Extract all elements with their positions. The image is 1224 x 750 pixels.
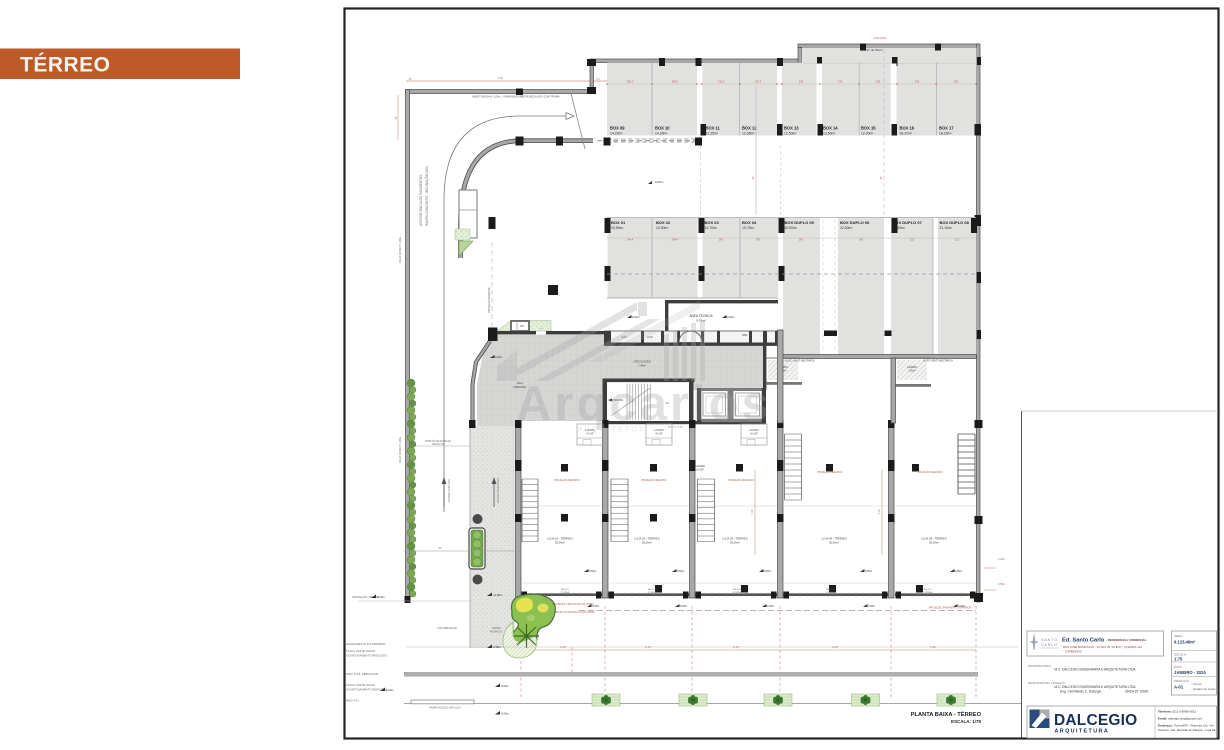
svg-text:Endereço: Torres/RS - Praia da: Endereço: Torres/RS - Praia da Cal - Av. (1158, 724, 1214, 728)
svg-text:Eng. Civil Márcio C. Dalcegio: Eng. Civil Márcio C. Dalcegio (1060, 690, 1102, 694)
svg-text:0,35m: 0,35m (998, 583, 1005, 586)
svg-text:PROJEÇÃO MEZANINO: PROJEÇÃO MEZANINO (817, 471, 843, 474)
svg-text:7,10: 7,10 (878, 509, 881, 514)
svg-text:55,00m²: 55,00m² (829, 541, 839, 545)
svg-text:PLACA LIMITE VAGAS: PLACA LIMITE VAGAS (346, 683, 375, 687)
svg-text:4,00x4,00m: 4,00x4,00m (873, 36, 887, 40)
svg-text:PROPRIETÁRIO:: PROPRIETÁRIO: (1028, 664, 1052, 668)
svg-text:0,38m: 0,38m (493, 645, 501, 649)
svg-text:0,40m: 0,40m (998, 558, 1005, 561)
svg-text:BOX 16: BOX 16 (900, 126, 915, 131)
svg-text:7,44m²: 7,44m² (638, 365, 646, 368)
svg-text:RAMPA CONCRETO - INCLINAÇÃO 20: RAMPA CONCRETO - INCLINAÇÃO 20% (424, 166, 429, 226)
svg-text:M.C. DALCEGIO ENGENHARIA E ARQ: M.C. DALCEGIO ENGENHARIA E ARQUITETURA L… (1054, 685, 1136, 689)
svg-text:MEIO FIO: MEIO FIO (346, 699, 359, 703)
svg-text:PROJEÇÃO MEZANINO: PROJEÇÃO MEZANINO (728, 479, 754, 482)
svg-text:239: 239 (876, 80, 881, 84)
svg-text:12,25m²: 12,25m² (706, 132, 719, 136)
svg-text:BOX 04: BOX 04 (742, 220, 757, 225)
svg-text:0,50m: 0,50m (677, 569, 684, 573)
svg-text:LAVABO: LAVABO (695, 465, 705, 468)
svg-text:0,35m: 0,35m (958, 604, 965, 608)
svg-text:9.123,49m²: 9.123,49m² (1174, 640, 1196, 645)
svg-text:ACANTONAMENTO REDUZIDO: ACANTONAMENTO REDUZIDO (346, 654, 388, 658)
svg-text:DML: DML (742, 334, 748, 337)
svg-text:PROJEÇÃO MEZANINO: PROJEÇÃO MEZANINO (554, 479, 580, 482)
svg-text:239: 239 (915, 80, 920, 84)
svg-text:0,00m: 0,00m (377, 595, 385, 599)
svg-text:0,50m: 0,50m (865, 569, 872, 573)
svg-text:PISO TÁTIL DIRECIONAL: PISO TÁTIL DIRECIONAL (346, 672, 379, 676)
svg-text:- TORRES/RS: - TORRES/RS (1063, 649, 1082, 653)
svg-text:IN USF: IN USF (696, 470, 704, 472)
svg-text:PROJEÇÃO A PROTEÇÃO DA PORTA: PROJEÇÃO A PROTEÇÃO DA PORTA (552, 603, 594, 606)
svg-text:VITRINE: VITRINE (826, 592, 835, 594)
svg-text:BOX 01: BOX 01 (611, 220, 626, 225)
svg-text:PROJEÇÃO MEZANINO: PROJEÇÃO MEZANINO (641, 479, 667, 482)
svg-text:18,22m²: 18,22m² (900, 132, 913, 136)
svg-text:LOJA 01 - TÉRREO: LOJA 01 - TÉRREO (547, 536, 573, 541)
svg-text:Arqcarlos: Arqcarlos (516, 377, 772, 431)
svg-text:RUA JOSÉ BONIFÁCIO - LOTES 05,: RUA JOSÉ BONIFÁCIO - LOTES 05, 06 E 07 -… (1063, 644, 1142, 649)
svg-text:Zenturo - Ed. Morada do Parque: Zenturo - Ed. Morada do Parque - Loja 02 (1158, 728, 1216, 732)
svg-text:DATA:: DATA: (1174, 665, 1183, 669)
svg-text:Email: dalcegio.arq@gmail.com: Email: dalcegio.arq@gmail.com (1158, 717, 1203, 721)
svg-text:12,50m²: 12,50m² (784, 132, 797, 136)
svg-text:BOX 11: BOX 11 (706, 126, 721, 131)
svg-text:IN USF: IN USF (750, 434, 758, 436)
svg-text:10,70m²: 10,70m² (742, 226, 755, 230)
svg-text:BOX 17: BOX 17 (939, 126, 954, 131)
svg-text:VITRINE: VITRINE (924, 592, 933, 594)
svg-text:SANTO: SANTO (1041, 638, 1058, 642)
svg-text:0,00m: 0,00m (727, 315, 735, 319)
svg-text:RECUO: RECUO (561, 589, 569, 591)
svg-text:DALCEGIO: DALCEGIO (1054, 712, 1137, 729)
svg-text:250,0: 250,0 (672, 80, 679, 84)
svg-text:- Quadro de Áreas: - Quadro de Áreas (1191, 687, 1216, 691)
svg-text:22,50m²: 22,50m² (840, 226, 853, 230)
svg-text:BOX 02: BOX 02 (656, 220, 671, 225)
svg-text:Telefone: (51) 9 9999-9912: Telefone: (51) 9 9999-9912 (1158, 710, 1196, 714)
svg-text:LOJA 02 - TÉRREO: LOJA 02 - TÉRREO (634, 536, 660, 541)
svg-text:BOX DUPLO 08: BOX DUPLO 08 (940, 220, 970, 225)
svg-text:A R Q U I T E T O S: A R Q U I T E T O S (578, 425, 645, 434)
svg-text:IN USF: IN USF (586, 434, 594, 436)
svg-text:1:75: 1:75 (1174, 657, 1183, 662)
svg-text:239: 239 (954, 80, 959, 84)
svg-text:0,35m: 0,35m (680, 604, 687, 608)
svg-text:BOX 10: BOX 10 (655, 126, 670, 131)
svg-text:PROJEÇÃO MARQUISE: PROJEÇÃO MARQUISE (488, 287, 491, 313)
svg-text:7,10: 7,10 (751, 509, 754, 514)
svg-text:55,00m²: 55,00m² (730, 541, 740, 545)
svg-text:0,60m: 0,60m (501, 684, 509, 688)
svg-text:ÁREA:: ÁREA: (1174, 634, 1183, 638)
svg-text:Ed. Santo Carlo: Ed. Santo Carlo (1062, 638, 1105, 644)
svg-text:BOX 15: BOX 15 (861, 126, 876, 131)
svg-text:ALINHAMENTO DO TERRENO: ALINHAMENTO DO TERRENO (346, 642, 386, 646)
svg-text:0,50m: 0,50m (955, 569, 962, 573)
svg-text:ACESSO PEDESTRES: ACESSO PEDESTRES (497, 477, 500, 503)
svg-text:CREA ST 16920: CREA ST 16920 (1125, 690, 1149, 694)
svg-text:232,5: 232,5 (718, 80, 725, 84)
svg-text:RAMPA ACESSO VEÍCULOS: RAMPA ACESSO VEÍCULOS (429, 707, 461, 710)
svg-text:+0,38m: +0,38m (493, 593, 503, 597)
svg-text:232,5: 232,5 (755, 80, 762, 84)
svg-text:- Térreo: - Térreo (1191, 682, 1202, 686)
svg-text:0,35m: 0,35m (868, 604, 875, 608)
svg-text:14,28m²: 14,28m² (655, 132, 668, 136)
svg-text:55,00m²: 55,00m² (929, 541, 939, 545)
svg-text:10,90m²: 10,90m² (611, 226, 624, 230)
svg-text:239: 239 (838, 80, 843, 84)
svg-text:VITRINE: VITRINE (561, 592, 570, 594)
svg-text:TÉRREO: TÉRREO (20, 54, 111, 77)
svg-text:ÁREA TÉCNICA: ÁREA TÉCNICA (689, 313, 713, 318)
svg-text:VITRINE: VITRINE (733, 592, 742, 594)
svg-text:- RESIDENCIAL/ COMERCIAL: - RESIDENCIAL/ COMERCIAL (1106, 638, 1147, 642)
svg-text:M.C. DALCEGIO ENGENHARIA E ARQ: M.C. DALCEGIO ENGENHARIA E ARQUITETURA L… (1054, 668, 1136, 672)
svg-text:PROJEÇÃO MEZANINO: PROJEÇÃO MEZANINO (917, 471, 943, 474)
svg-text:13,50m²: 13,50m² (823, 132, 836, 136)
svg-text:0,35m: 0,35m (767, 604, 774, 608)
svg-text:ACESSO VEÍCULOS: ACESSO VEÍCULOS (448, 479, 451, 502)
svg-text:GUIA REBAIXADA: GUIA REBAIXADA (437, 627, 457, 630)
svg-text:0,00m: 0,00m (655, 180, 664, 184)
svg-text:RECUO: RECUO (648, 589, 656, 591)
svg-text:PLACA LIMITE VAGAS: PLACA LIMITE VAGAS (346, 649, 375, 653)
svg-text:PRANCHA:: PRANCHA: (1174, 679, 1190, 683)
svg-text:RECUO: RECUO (733, 589, 741, 591)
svg-text:IN USF: IN USF (655, 434, 663, 436)
svg-text:55,00m²: 55,00m² (642, 541, 652, 545)
svg-text:12,36m²: 12,36m² (742, 132, 755, 136)
svg-text:BOX DUPLO 07: BOX DUPLO 07 (893, 220, 923, 225)
svg-text:BOX 13: BOX 13 (784, 126, 799, 131)
svg-text:PROJEÇÃO DA PROTEÇÃO DA PORTA: PROJEÇÃO DA PROTEÇÃO DA PORTA (549, 611, 595, 614)
svg-text:BOX DUPLO 05: BOX DUPLO 05 (785, 220, 815, 225)
svg-text:VEÍCULOS: VEÍCULOS (432, 443, 444, 446)
svg-text:18,18m²: 18,18m² (939, 132, 952, 136)
svg-text:MURO DIVISA H: 2,00m: MURO DIVISA H: 2,00m (399, 437, 402, 463)
svg-text:BOX 12: BOX 12 (742, 126, 757, 131)
svg-text:0,50m: 0,50m (589, 569, 596, 573)
svg-text:0,00m: 0,00m (495, 355, 503, 359)
svg-text:LOJA 03 - TÉRREO: LOJA 03 - TÉRREO (722, 536, 748, 541)
svg-text:PLANTA BAIXA - TÉRREO: PLANTA BAIXA - TÉRREO (911, 710, 982, 718)
svg-text:ESCALA: 1/75: ESCALA: 1/75 (951, 719, 982, 724)
svg-text:55,00m²: 55,00m² (555, 541, 565, 545)
svg-text:10,70m²: 10,70m² (705, 226, 718, 230)
svg-text:LOJA 04 - TÉRREO: LOJA 04 - TÉRREO (821, 536, 847, 541)
svg-text:CARLO: CARLO (1041, 643, 1058, 647)
svg-text:RECUO: RECUO (924, 589, 932, 591)
svg-text:12,00m²: 12,00m² (861, 132, 874, 136)
svg-text:0,50m: 0,50m (764, 569, 771, 573)
svg-text:0,00m: 0,00m (501, 712, 509, 716)
svg-text:ACESSO VEÍCULOS PAVIMENTOS: ACESSO VEÍCULOS PAVIMENTOS (419, 174, 423, 226)
svg-text:RECUO: RECUO (826, 589, 834, 591)
svg-text:VITRINE: VITRINE (648, 592, 657, 594)
svg-text:LAVABO: LAVABO (907, 365, 917, 369)
svg-text:LOJA 05 - TÉRREO: LOJA 05 - TÉRREO (921, 536, 947, 541)
svg-text:21,10m²: 21,10m² (940, 226, 953, 230)
svg-text:JANEIRO - 2024: JANEIRO - 2024 (1174, 670, 1206, 675)
svg-text:ARQUITETURA: ARQUITETURA (1055, 729, 1110, 735)
svg-text:A-01: A-01 (1174, 685, 1184, 690)
svg-text:BOX DUPLO 06: BOX DUPLO 06 (840, 220, 870, 225)
svg-text:20,90m²: 20,90m² (785, 226, 798, 230)
svg-text:MURO DIVISA H: 2,00m - GARAGEN: MURO DIVISA H: 2,00m - GARAGENS ABERTA E… (472, 95, 559, 99)
svg-text:BOX 03: BOX 03 (705, 220, 720, 225)
svg-text:BOX 14: BOX 14 (823, 126, 838, 131)
svg-text:250,0: 250,0 (627, 80, 634, 84)
svg-text:21,30m²: 21,30m² (893, 226, 906, 230)
svg-text:14,22m²: 14,22m² (610, 132, 623, 136)
svg-text:PEDRISCO: PEDRISCO (490, 631, 503, 634)
svg-text:239: 239 (799, 80, 804, 84)
svg-text:AFAST. da 150cm: AFAST. da 150cm (861, 48, 883, 52)
svg-text:WC: WC (520, 324, 524, 328)
svg-text:3,00m²: 3,00m² (908, 370, 916, 373)
svg-text:0,00m: 0,00m (386, 688, 394, 692)
svg-text:10,90m²: 10,90m² (656, 226, 669, 230)
svg-text:7,10: 7,10 (497, 76, 503, 80)
svg-text:MURO DIVISA H: 2,00m: MURO DIVISA H: 2,00m (399, 237, 402, 263)
svg-text:BOX 09: BOX 09 (610, 126, 625, 131)
